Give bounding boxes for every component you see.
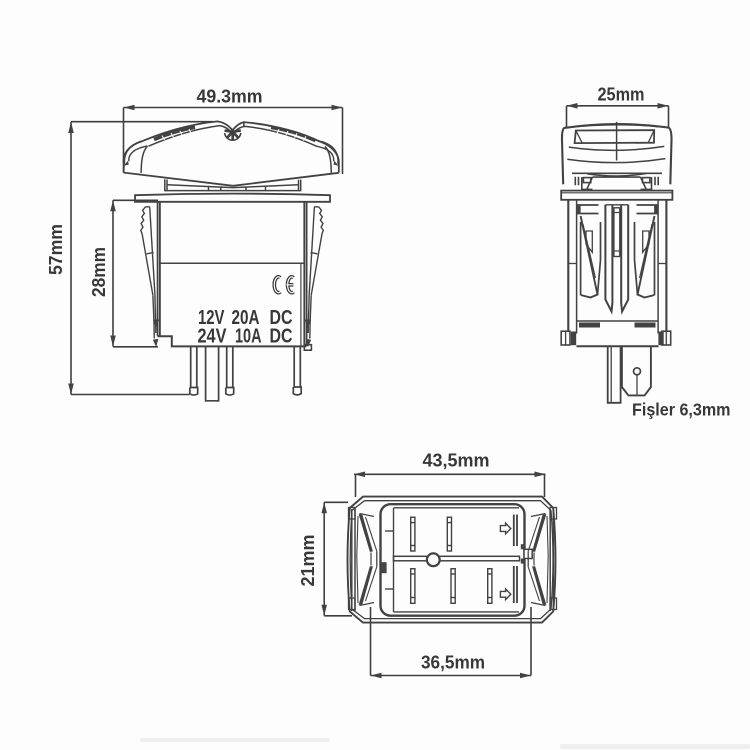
svg-text:21mm: 21mm: [298, 535, 318, 587]
svg-text:43,5mm: 43,5mm: [423, 451, 490, 471]
svg-text:57mm: 57mm: [46, 224, 66, 275]
svg-text:24V: 24V: [198, 324, 227, 347]
svg-text:DC: DC: [270, 324, 293, 347]
svg-text:25mm: 25mm: [598, 85, 645, 105]
svg-text:10A: 10A: [235, 324, 262, 347]
svg-text:36,5mm: 36,5mm: [421, 653, 485, 673]
svg-text:28mm: 28mm: [89, 247, 109, 297]
svg-text:Fişler 6,3mm: Fişler 6,3mm: [632, 400, 731, 420]
svg-text:49.3mm: 49.3mm: [197, 87, 263, 107]
